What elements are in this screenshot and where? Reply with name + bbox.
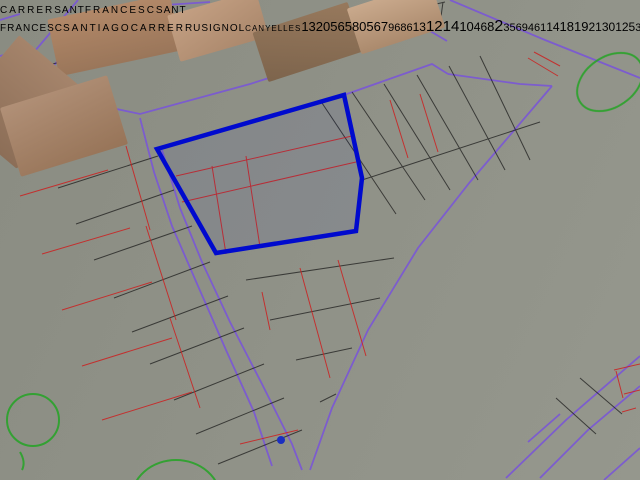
street-label: RUSIGNOL: [185, 23, 245, 34]
cadastral-map[interactable]: CARRERSANTFRANCESCSANT FRANCESCSANTIAGOC…: [0, 0, 640, 480]
house-number-label: 3: [419, 20, 426, 34]
map-sheet-ref: 9686: [388, 22, 412, 34]
street-label: FRANCESC: [85, 5, 156, 16]
house-number-label: 19: [574, 19, 588, 34]
street-label: CARRER: [0, 5, 54, 16]
street-label: CARRER: [131, 23, 185, 34]
house-number-label: 3: [635, 22, 640, 34]
parcel-ref-label: 80567: [352, 19, 388, 34]
map-labels: CARRERSANTFRANCESCSANT FRANCESCSANTIAGOC…: [0, 0, 640, 480]
house-number-label: 12: [426, 18, 443, 35]
street-label: SANT: [54, 5, 85, 16]
map-sheet-ref: 0565: [323, 19, 352, 34]
house-number-label: 18: [560, 19, 574, 34]
street-label: CANYELLES: [245, 24, 301, 33]
map-sheet-ref: 132: [301, 19, 323, 34]
house-number-label: 125: [615, 20, 635, 34]
street-label: SANTIAGO: [63, 23, 131, 34]
house-number-label: 14: [546, 20, 559, 34]
house-number-label: 14: [443, 18, 460, 35]
house-number-label: 2: [494, 18, 503, 35]
house-number-label: 10: [459, 19, 473, 34]
house-number-label: 130: [595, 20, 615, 34]
